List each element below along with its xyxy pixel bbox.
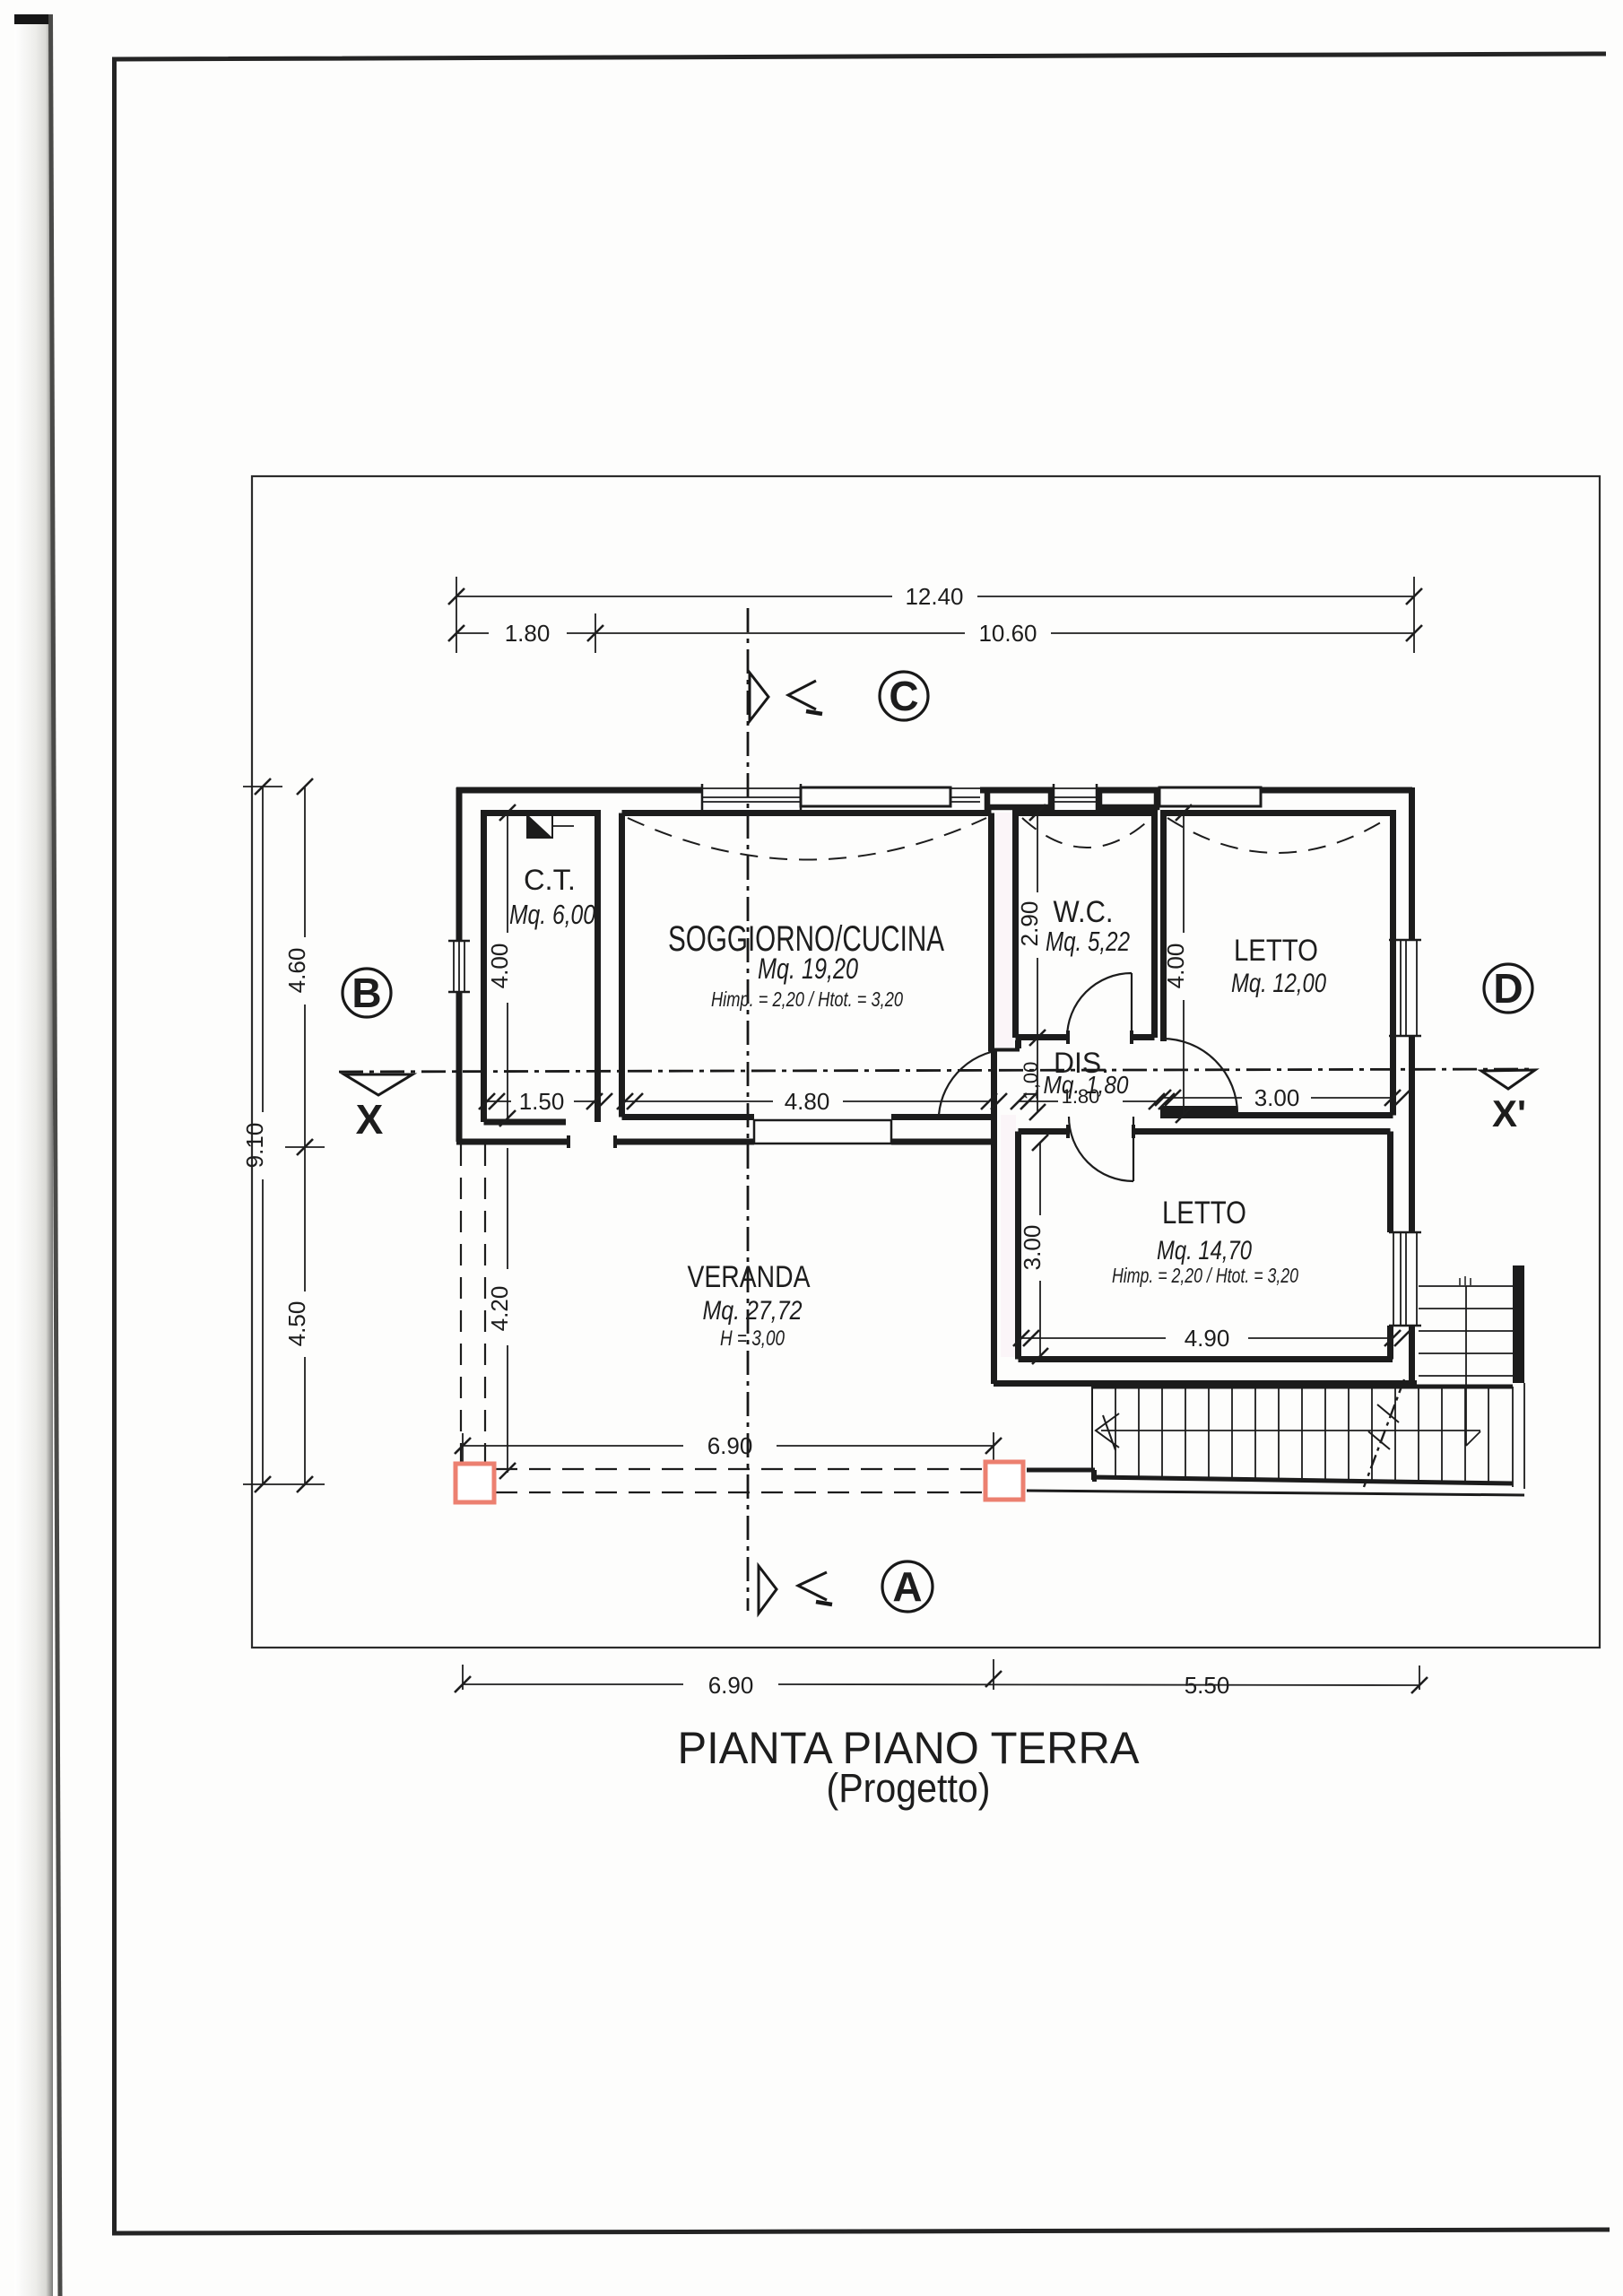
svg-text:10.60: 10.60 [978,620,1037,647]
svg-text:3.00: 3.00 [1254,1084,1300,1111]
svg-text:2.90: 2.90 [1016,901,1043,947]
svg-text:(Progetto): (Progetto) [827,1765,991,1811]
svg-text:C.T.: C.T. [524,864,576,896]
svg-text:6.90: 6.90 [708,1672,754,1699]
svg-text:Himp. = 2,20 / Htot. = 3,20: Himp. = 2,20 / Htot. = 3,20 [1112,1264,1298,1287]
svg-text:D: D [1493,965,1523,1012]
svg-text:W.C.: W.C. [1054,895,1114,929]
svg-text:LETTO: LETTO [1234,934,1318,968]
svg-text:Mq. 1,80: Mq. 1,80 [1044,1071,1129,1099]
svg-text:4.00: 4.00 [1162,944,1189,989]
svg-text:Mq. 14,70: Mq. 14,70 [1157,1236,1252,1265]
svg-text:A: A [892,1563,922,1610]
svg-text:VERANDA: VERANDA [688,1260,811,1294]
svg-text:C: C [889,673,918,719]
svg-text:Mq. 5,22: Mq. 5,22 [1046,926,1130,957]
svg-text:Mq. 6,00: Mq. 6,00 [509,899,595,930]
svg-text:1.50: 1.50 [519,1088,565,1115]
svg-text:4.90: 4.90 [1185,1325,1230,1352]
svg-text:6.90: 6.90 [707,1432,753,1459]
svg-text:4.00: 4.00 [486,944,513,989]
svg-text:9.10: 9.10 [241,1123,268,1169]
svg-text:4.80: 4.80 [785,1088,830,1115]
svg-text:4.20: 4.20 [486,1286,513,1332]
svg-text:12.40: 12.40 [905,583,963,610]
svg-text:4.50: 4.50 [283,1301,310,1347]
svg-text:LETTO: LETTO [1162,1196,1246,1231]
svg-text:B: B [352,970,381,1016]
svg-text:1.80: 1.80 [505,620,551,647]
svg-text:4.60: 4.60 [283,948,310,994]
svg-text:X': X' [1492,1092,1526,1135]
svg-text:1,00: 1,00 [1020,1062,1042,1100]
svg-text:X: X [356,1096,384,1143]
svg-text:H = 3,00: H = 3,00 [720,1326,785,1351]
svg-text:Mq. 27,72: Mq. 27,72 [703,1296,803,1326]
svg-text:3.00: 3.00 [1019,1225,1046,1271]
svg-text:5.50: 5.50 [1185,1672,1230,1699]
svg-text:Mq. 19,20: Mq. 19,20 [758,952,858,985]
svg-text:Mq. 12,00: Mq. 12,00 [1231,969,1326,998]
svg-text:Himp. = 2,20 / Htot. = 3,20: Himp. = 2,20 / Htot. = 3,20 [711,987,903,1011]
